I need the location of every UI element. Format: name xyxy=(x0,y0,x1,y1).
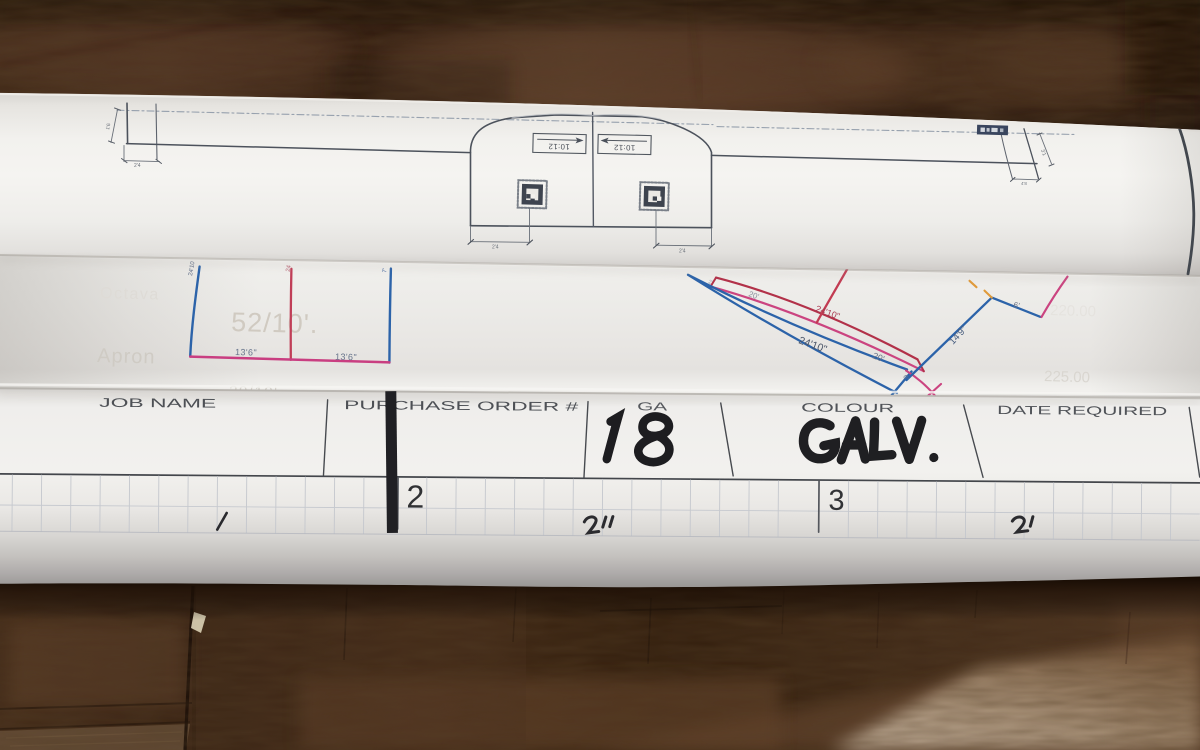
svg-text:10:12: 10:12 xyxy=(614,143,636,152)
svg-text:DATE REQUIRED: DATE REQUIRED xyxy=(997,403,1168,418)
svg-text:JOB NAME: JOB NAME xyxy=(99,396,216,411)
svg-text:2'4: 2'4 xyxy=(134,163,141,169)
svg-text:COLOUR: COLOUR xyxy=(801,401,895,416)
svg-text:GA: GA xyxy=(637,401,668,413)
svg-text:4'8: 4'8 xyxy=(1021,181,1027,186)
svg-text:Octava: Octava xyxy=(100,285,160,303)
svg-text:10:12: 10:12 xyxy=(548,142,570,151)
svg-text:3: 3 xyxy=(828,485,844,517)
svg-text:Apron: Apron xyxy=(97,345,156,368)
svg-text:225.00: 225.00 xyxy=(1044,368,1090,386)
svg-text:2'4: 2'4 xyxy=(492,245,499,251)
svg-text:52/10'.: 52/10'. xyxy=(231,307,319,339)
svg-text:13'6": 13'6" xyxy=(235,347,257,358)
svg-text:13'6": 13'6" xyxy=(335,352,357,363)
svg-text:2'4: 2'4 xyxy=(679,249,686,255)
svg-text:2: 2 xyxy=(406,479,424,515)
svg-text:220.00: 220.00 xyxy=(1050,302,1096,320)
svg-text:PURCHASE ORDER #: PURCHASE ORDER # xyxy=(344,398,578,414)
